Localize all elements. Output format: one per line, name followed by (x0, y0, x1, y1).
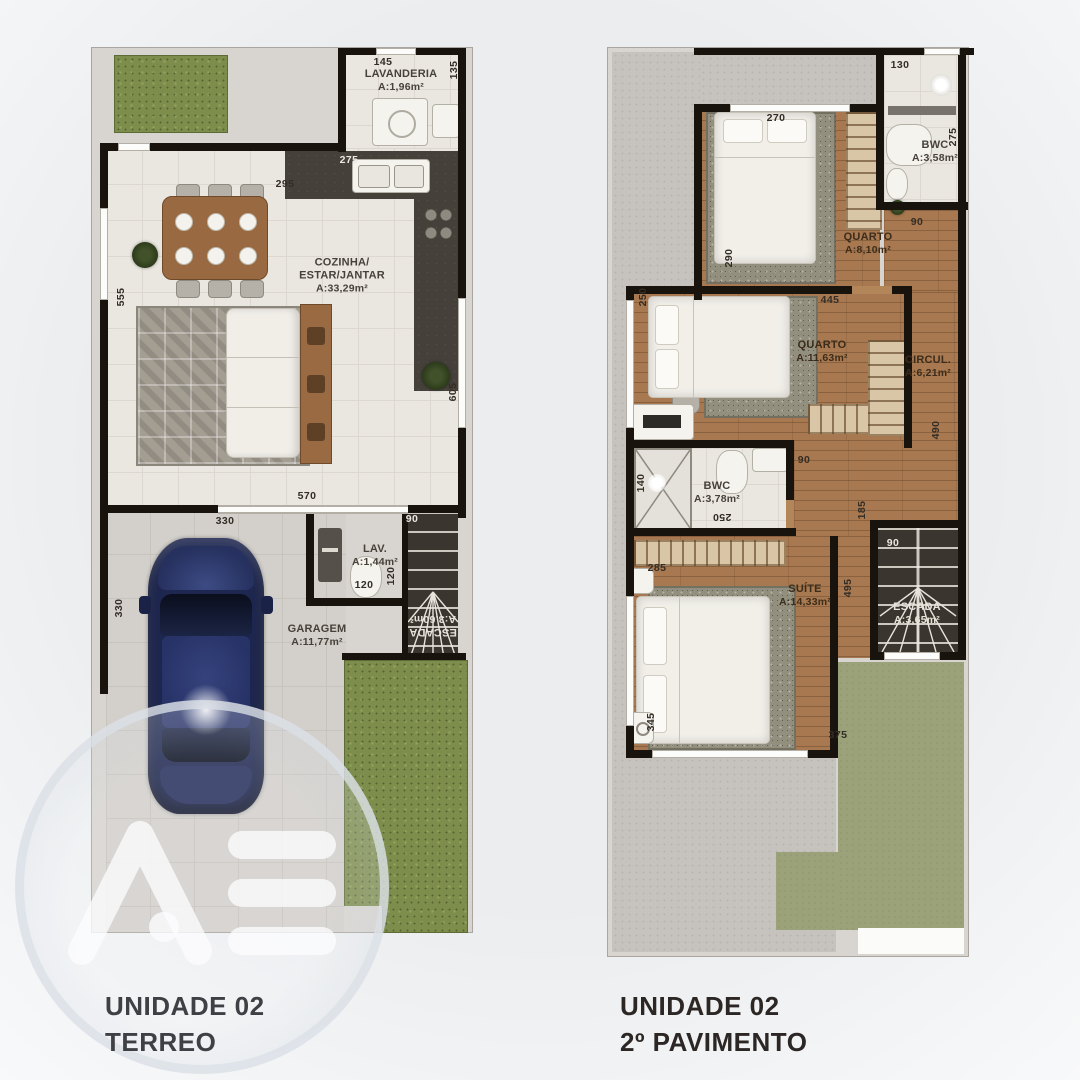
dim-label: 90 (911, 216, 923, 228)
cooktop (422, 205, 454, 243)
dining-chair (176, 280, 200, 298)
title-pavimento: UNIDADE 02 2º PAVIMENTO (620, 988, 807, 1060)
blanket-line (679, 597, 680, 743)
terrace-notch (858, 928, 964, 954)
window (652, 750, 808, 758)
window (376, 48, 416, 55)
room-area: A:6,21m² (905, 367, 951, 380)
dim-label: 135 (448, 61, 460, 80)
door-opening (786, 500, 794, 528)
wall (458, 48, 466, 518)
room-label-circul: CIRCUL. A:6,21m² (905, 354, 951, 380)
wall (100, 505, 218, 513)
dim-label: 130 (891, 59, 910, 71)
plate (239, 247, 257, 265)
wall (958, 48, 966, 660)
pillow (723, 119, 763, 143)
dim-label: 495 (842, 579, 854, 598)
window (884, 652, 940, 660)
plant (132, 242, 158, 268)
shower-head (930, 74, 952, 96)
wall (626, 528, 796, 536)
stool (307, 375, 325, 393)
room-name: COZINHA/ (299, 257, 385, 270)
room-area: A:3,58m² (912, 152, 958, 165)
dim-label: 445 (821, 294, 840, 306)
title-line: 2º PAVIMENTO (620, 1024, 807, 1060)
dim-label: 375 (829, 729, 848, 741)
room-name: SUÍTE (779, 583, 831, 596)
dim-label: 270 (767, 112, 786, 124)
room-name: LAVANDERIA (365, 68, 437, 81)
room-name: ESCADA (893, 601, 941, 614)
window (924, 48, 960, 55)
dim-label: 275 (340, 154, 359, 166)
sofa-cushion-line (227, 407, 299, 408)
garden-patch-top (114, 55, 228, 133)
watermark-dot (149, 912, 179, 942)
sink-basin-right (394, 165, 424, 188)
floor-plan-sheet: LAVANDERIA A:1,96m² COZINHA/ ESTAR/JANTA… (0, 0, 1080, 1080)
wardrobe (868, 340, 906, 436)
room-area: A:3,65m² (893, 614, 941, 627)
bath-shelf (888, 106, 956, 115)
wall (876, 202, 968, 210)
plate (175, 213, 193, 231)
window (626, 300, 634, 428)
terrace-green-ext (776, 852, 838, 930)
dim-label: 295 (276, 178, 295, 190)
wall (870, 520, 966, 528)
dim-label: 120 (385, 567, 397, 586)
stool (307, 327, 325, 345)
car-mirror-left (139, 596, 151, 614)
dim-label: 90 (887, 537, 899, 549)
dim-label: 330 (113, 599, 125, 618)
room-label-quarto2: QUARTO A:11,63m² (796, 339, 847, 365)
wall (306, 512, 314, 606)
room-name: LAV. (352, 543, 398, 556)
title-terreo: UNIDADE 02 TERREO (105, 988, 265, 1060)
dim-label: 250 (637, 288, 649, 307)
door-opening (852, 286, 892, 294)
blanket-line (693, 297, 694, 397)
plate (239, 213, 257, 231)
sofa (226, 308, 300, 458)
car-hood (158, 546, 254, 590)
terrace-top-left (612, 52, 700, 302)
dim-label: 185 (856, 501, 868, 520)
bathroom-sink (752, 448, 788, 472)
car-mirror-right (261, 596, 273, 614)
sliding-door (218, 505, 408, 514)
dim-label: 290 (723, 249, 735, 268)
dim-label: 555 (115, 288, 127, 307)
dim-label: 285 (648, 562, 667, 574)
room-area: A:3,60m² (409, 612, 457, 625)
dim-label: 90 (798, 454, 810, 466)
room-label-escada: ESCADA A:3,60m² (409, 612, 457, 638)
lav-faucet (322, 548, 338, 552)
room-name: QUARTO (844, 231, 893, 244)
shower-head (648, 474, 666, 492)
window (730, 104, 850, 112)
dresser-tv (630, 404, 694, 440)
wall (830, 536, 838, 758)
dim-label: 570 (298, 490, 317, 502)
sofa-cushion-line (227, 357, 299, 358)
tv (643, 415, 681, 428)
wall (870, 520, 878, 660)
toilet (886, 168, 908, 200)
room-label-lav: LAV. A:1,44m² (352, 543, 398, 569)
dining-chair (240, 280, 264, 298)
wall (342, 653, 466, 660)
plate (207, 247, 225, 265)
blanket-line (715, 157, 815, 158)
room-name: BWC (694, 480, 740, 493)
garden-patch-bottom-edge (382, 906, 468, 933)
floor-plan-pavimento: BWC A:3,58m² QUARTO A:8,10m² QUARTO A:11… (608, 48, 968, 956)
dim-label: 90 (406, 513, 418, 525)
wall (100, 143, 108, 518)
wall (626, 440, 794, 448)
room-label-escada2: ESCADA A:3,65m² (893, 601, 941, 627)
room-area: A:3,78m² (694, 493, 740, 506)
window (458, 298, 466, 428)
room-area: A:8,10m² (844, 244, 893, 257)
console-sideboard (300, 304, 332, 464)
wall (408, 505, 466, 513)
terrace-top-strip (700, 55, 876, 104)
wall (306, 598, 408, 606)
room-area: A:11,63m² (796, 352, 847, 365)
washer-drum (388, 110, 416, 138)
room-label-cozinha: COZINHA/ ESTAR/JANTAR A:33,29m² (299, 257, 385, 296)
dining-chair (208, 280, 232, 298)
window (626, 596, 634, 726)
pillow (643, 607, 667, 665)
dim-label: 120 (355, 579, 374, 591)
plate (175, 247, 193, 265)
room-area: A:1,96m² (365, 81, 437, 94)
entry-door-opening (118, 143, 150, 151)
lav-vanity (318, 528, 342, 582)
dim-label: 330 (216, 515, 235, 527)
title-line: UNIDADE 02 (105, 988, 265, 1024)
room-label-lavanderia: LAVANDERIA A:1,96m² (365, 68, 437, 94)
dim-label: 145 (374, 56, 393, 68)
room-name: GARAGEM (288, 623, 347, 636)
wall (100, 512, 108, 694)
bed (648, 296, 790, 398)
room-label-suite: SUÍTE A:14,33m² (779, 583, 831, 609)
room-area: A:14,33m² (779, 596, 831, 609)
room-name: ESCADA (409, 625, 457, 638)
window (100, 208, 108, 300)
terrace-green-right (838, 662, 964, 930)
watermark-ab-letters (56, 801, 352, 971)
stool (307, 423, 325, 441)
plant (422, 362, 450, 390)
dim-label: 605 (447, 383, 459, 402)
dim-label: 345 (645, 713, 657, 732)
washer (372, 98, 428, 146)
kitchen-sink (352, 159, 430, 193)
room-area: A:11,77m² (288, 636, 347, 649)
room-name: ESTAR/JANTAR (299, 270, 385, 283)
room-label-quarto1: QUARTO A:8,10m² (844, 231, 893, 257)
room-name: QUARTO (796, 339, 847, 352)
room-name: CIRCUL. (905, 354, 951, 367)
pillow (655, 305, 679, 345)
title-line: TERREO (105, 1024, 265, 1060)
title-line: UNIDADE 02 (620, 988, 807, 1024)
laundry-tub (432, 104, 460, 138)
pillow (655, 349, 679, 389)
room-label-garagem: GARAGEM A:11,77m² (288, 623, 347, 649)
wall (338, 48, 346, 152)
wall (876, 55, 884, 210)
car-windshield (160, 594, 252, 636)
bed (714, 112, 816, 264)
dim-label: 250 (713, 511, 732, 523)
room-label-bwc2: BWC A:3,78m² (694, 480, 740, 506)
dining-table (162, 196, 268, 280)
sink-basin-left (358, 165, 390, 188)
plate (207, 213, 225, 231)
wall (402, 512, 408, 658)
wall (694, 104, 702, 300)
dim-label: 490 (930, 421, 942, 440)
dim-label: 140 (635, 474, 647, 493)
room-area: A:33,29m² (299, 283, 385, 296)
dim-label: 275 (947, 128, 959, 147)
